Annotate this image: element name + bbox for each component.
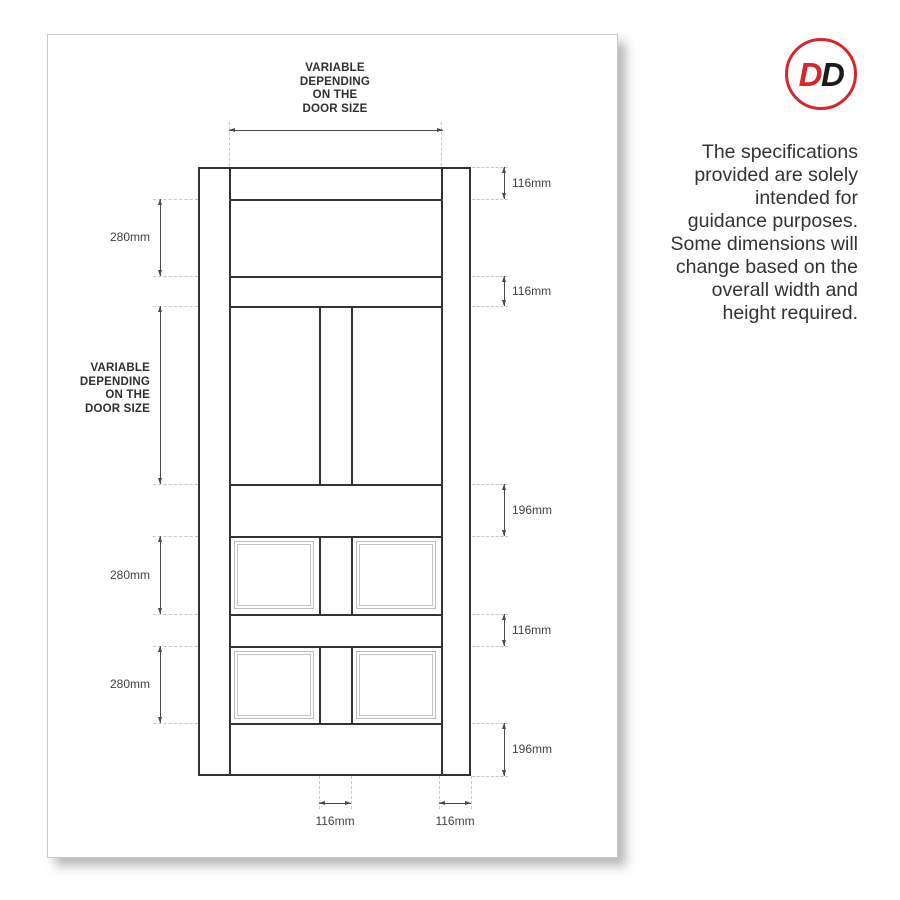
dd-logo-icon: DD (785, 38, 857, 110)
top-width-label: VARIABLE DEPENDING ON THE DOOR SIZE (235, 62, 435, 116)
rail-line-1 (229, 199, 443, 201)
guidance-note: The specifications provided are solely i… (598, 141, 858, 325)
dimension-arrow-116-second-rail (504, 276, 505, 306)
extension-line (472, 646, 508, 647)
dimension-arrow-280-top (160, 199, 161, 276)
extension-line (153, 723, 198, 724)
panel-lower-left (234, 651, 314, 719)
extension-line (471, 776, 472, 809)
extension-line (351, 776, 352, 809)
dim-label-116-second-rail: 116mm (512, 284, 551, 298)
dimension-arrow-116-muntin-width (319, 803, 351, 804)
dimension-arrow-196-bottom-rail (504, 723, 505, 776)
extension-line (472, 776, 508, 777)
dim-label-116-muntin-width: 116mm (315, 814, 354, 828)
rail-line-8 (229, 723, 443, 725)
rail-line-4 (229, 484, 443, 486)
extension-line (472, 306, 508, 307)
dimension-arrow-variable-height (160, 306, 161, 484)
dim-label-116-lower-rail: 116mm (512, 623, 551, 637)
dd-logo-letter-1: D (799, 56, 821, 93)
dim-label-196-bottom-rail: 196mm (512, 742, 552, 756)
muntin-left-line-mid (319, 536, 321, 616)
rail-line-5 (229, 536, 443, 538)
dimension-arrow-116-stile-width (439, 803, 471, 804)
extension-line (153, 484, 198, 485)
door-diagram: VARIABLE DEPENDING ON THE DOOR SIZE 280m… (48, 35, 617, 857)
extension-line (153, 614, 198, 615)
right-stile-line (441, 167, 443, 776)
dim-label-280-top: 280mm (110, 230, 150, 244)
dd-logo-letter-2: D (821, 56, 843, 93)
dimension-arrow-280-mid (160, 536, 161, 614)
panel-upper-left (234, 541, 314, 609)
dd-logo-letters: DD (799, 58, 844, 91)
dimension-arrow-116-top-rail (504, 167, 505, 199)
left-height-label: VARIABLE DEPENDING ON THE DOOR SIZE (80, 362, 150, 416)
left-stile-line (229, 167, 231, 776)
muntin-left-line-top (319, 306, 321, 486)
muntin-right-line-top (351, 306, 353, 486)
rail-line-3 (229, 306, 443, 308)
rail-line-7 (229, 646, 443, 648)
muntin-right-line-mid (351, 536, 353, 616)
muntin-left-line-bottom (319, 646, 321, 725)
panel-lower-right (356, 651, 436, 719)
dim-label-116-stile-width: 116mm (435, 814, 474, 828)
dim-label-280-mid: 280mm (110, 568, 150, 582)
dimension-arrow-196-mid-rail (504, 484, 505, 536)
dim-label-280-bottom: 280mm (110, 677, 150, 691)
extension-line (472, 199, 508, 200)
extension-line (472, 536, 508, 537)
spec-sheet-page: VARIABLE DEPENDING ON THE DOOR SIZE 280m… (47, 34, 618, 858)
muntin-right-line-bottom (351, 646, 353, 725)
panel-upper-right (356, 541, 436, 609)
dim-label-116-top-rail: 116mm (512, 176, 551, 190)
rail-line-6 (229, 614, 443, 616)
extension-line (153, 276, 198, 277)
dimension-arrow-280-bottom (160, 646, 161, 723)
dimension-arrow-116-lower-rail (504, 614, 505, 646)
dimension-arrow-top-width (229, 130, 443, 131)
dim-label-196-mid-rail: 196mm (512, 503, 552, 517)
rail-line-2 (229, 276, 443, 278)
